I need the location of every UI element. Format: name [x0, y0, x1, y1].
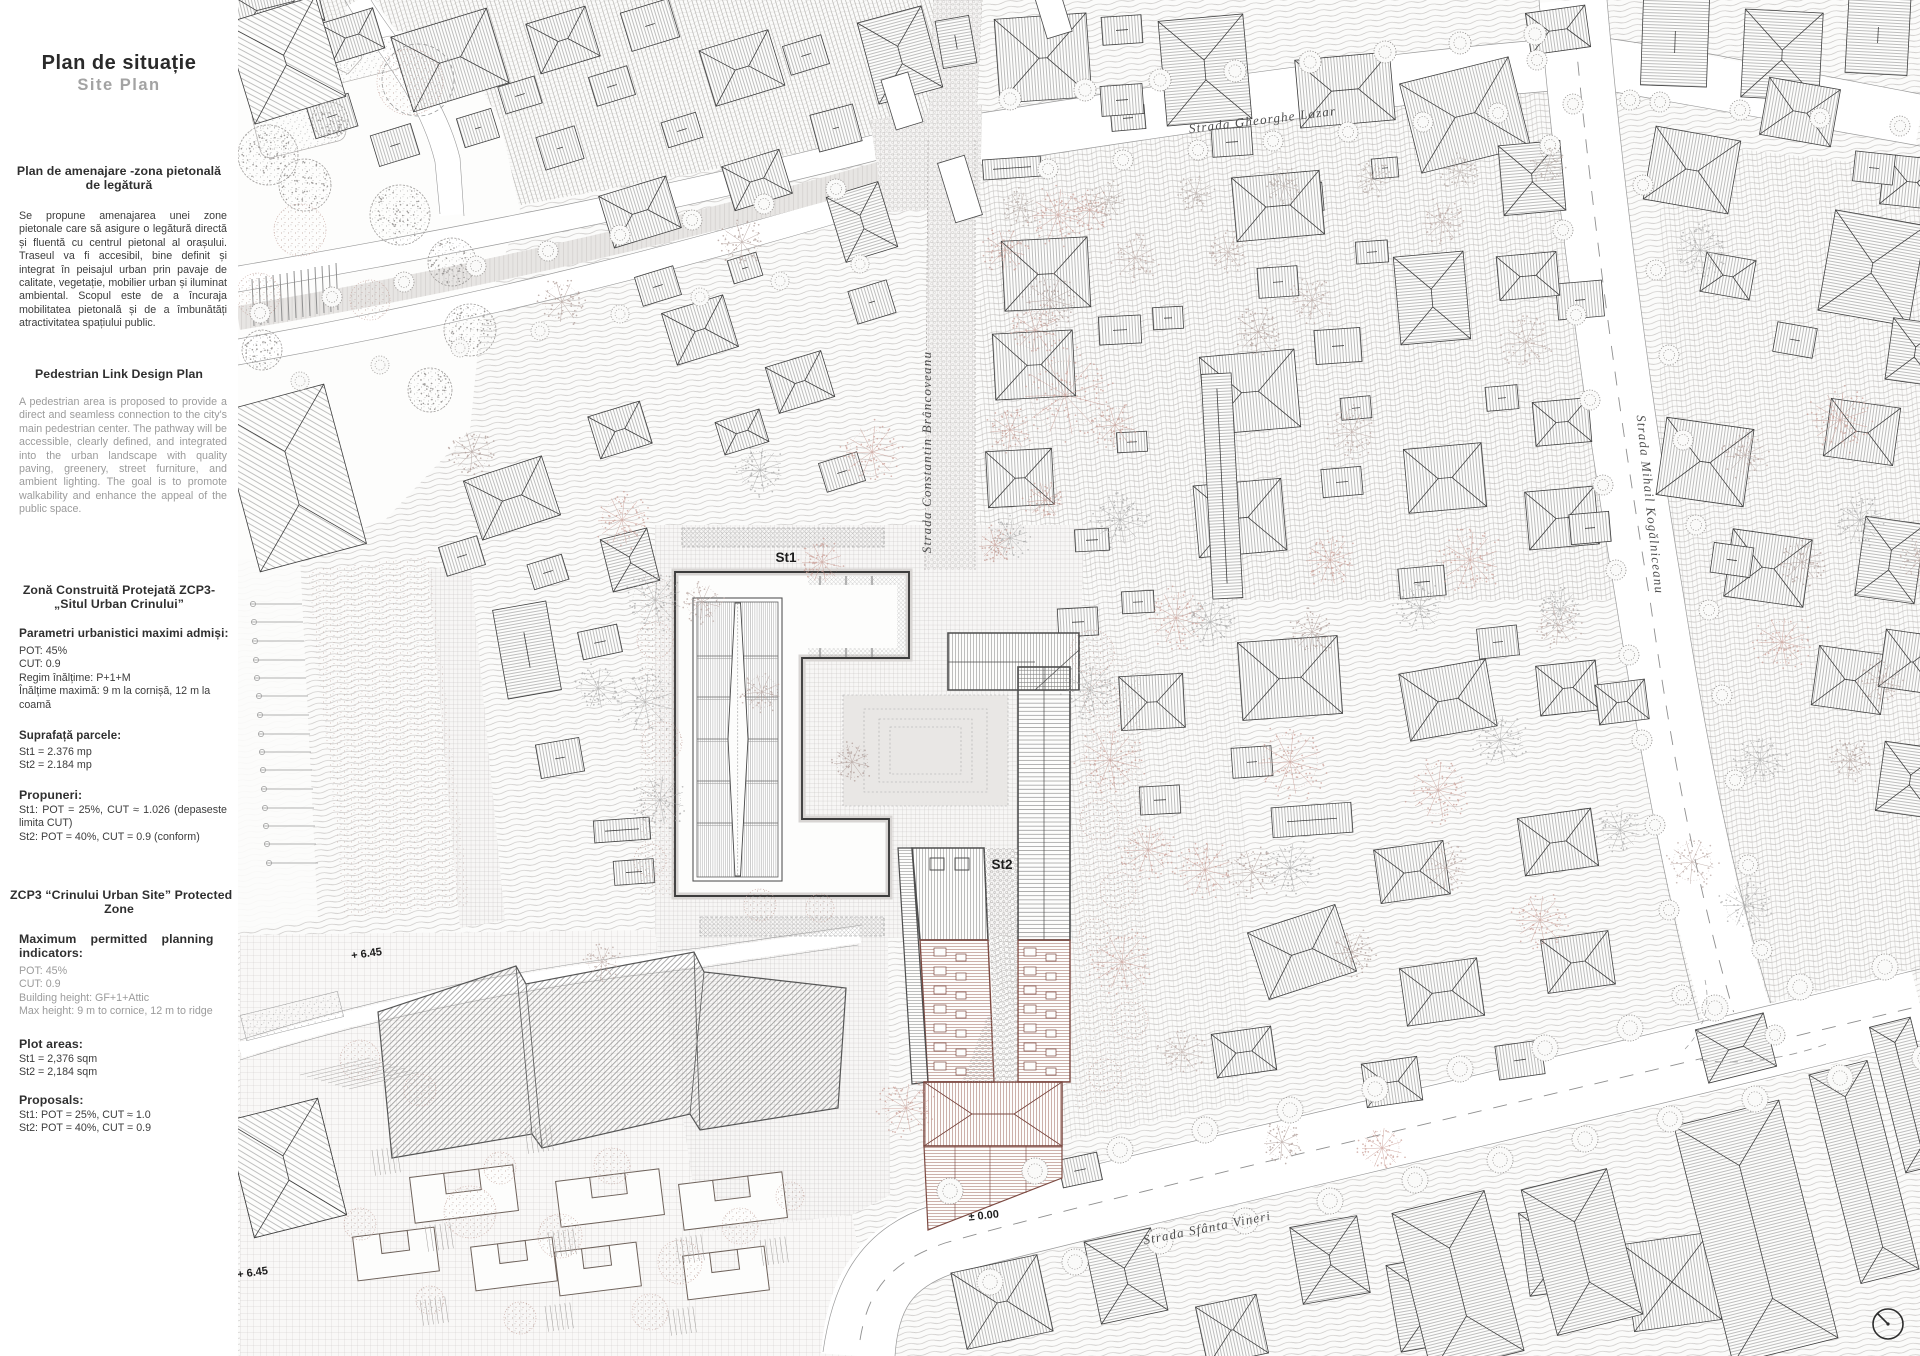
svg-text:Strada Constantin Brâncovean: Strada Constantin Brâncoveanu: [919, 351, 934, 553]
svg-text:St2: St2: [991, 857, 1012, 872]
svg-text:St1: St1: [775, 550, 797, 565]
